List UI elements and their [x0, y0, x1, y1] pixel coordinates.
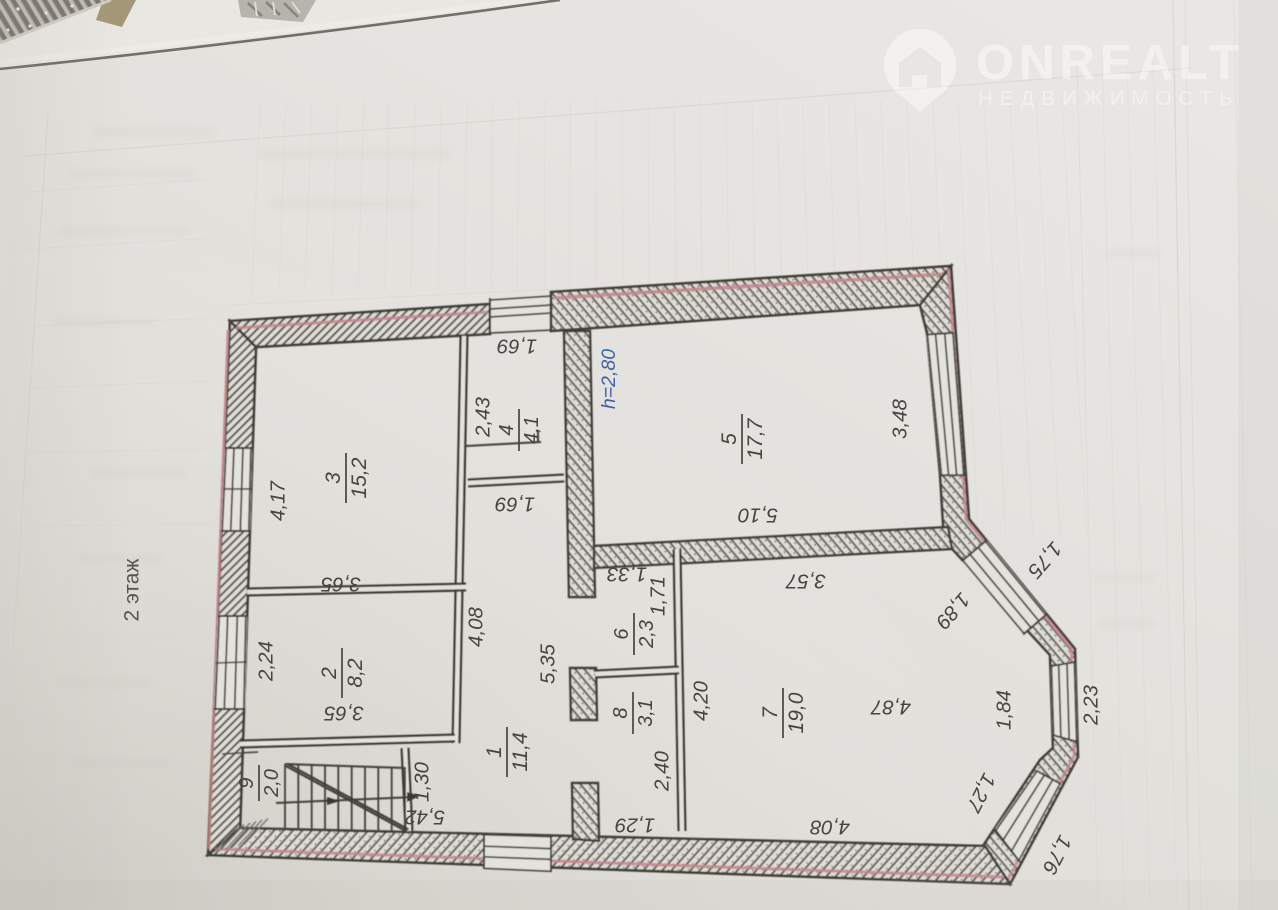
- svg-text:1,71: 1,71: [646, 576, 669, 616]
- svg-text:3,65: 3,65: [320, 573, 360, 596]
- svg-text:4,17: 4,17: [266, 479, 289, 520]
- svg-text:2,24: 2,24: [254, 641, 277, 682]
- svg-text:1,84: 1,84: [992, 690, 1015, 730]
- svg-text:1,29: 1,29: [615, 814, 655, 837]
- svg-text:11,4: 11,4: [509, 732, 532, 771]
- svg-text:h=2,80: h=2,80: [598, 349, 620, 409]
- svg-text:2,40: 2,40: [650, 750, 673, 791]
- svg-text:5,35: 5,35: [536, 643, 559, 683]
- svg-text:2,23: 2,23: [1079, 684, 1102, 725]
- svg-text:1: 1: [483, 746, 506, 758]
- svg-text:5,42: 5,42: [404, 806, 444, 829]
- svg-text:17,7: 17,7: [744, 417, 767, 459]
- svg-text:3: 3: [322, 472, 345, 484]
- svg-text:2,3: 2,3: [636, 620, 658, 649]
- svg-text:4,08: 4,08: [809, 816, 849, 839]
- svg-text:НЕДВИЖИМОСТЬ: НЕДВИЖИМОСТЬ: [978, 87, 1240, 110]
- svg-text:4,08: 4,08: [464, 606, 487, 646]
- svg-text:1,30: 1,30: [410, 761, 433, 801]
- svg-text:7: 7: [759, 706, 782, 719]
- svg-text:3,48: 3,48: [888, 398, 911, 438]
- svg-text:2,43: 2,43: [471, 396, 494, 437]
- svg-text:6: 6: [611, 628, 633, 640]
- svg-text:2: 2: [318, 667, 341, 680]
- svg-text:5,10: 5,10: [737, 504, 777, 527]
- svg-text:4,87: 4,87: [869, 696, 910, 719]
- svg-text:4,20: 4,20: [689, 680, 712, 720]
- svg-text:2,0: 2,0: [261, 769, 283, 798]
- svg-text:3,57: 3,57: [784, 570, 825, 593]
- svg-text:19,0: 19,0: [785, 692, 808, 733]
- svg-text:4: 4: [496, 424, 518, 435]
- svg-text:8: 8: [610, 707, 632, 718]
- svg-text:1,69: 1,69: [495, 493, 535, 516]
- svg-text:ONREALT: ONREALT: [976, 36, 1244, 90]
- svg-text:15,2: 15,2: [348, 457, 371, 498]
- svg-text:3,1: 3,1: [635, 699, 657, 727]
- svg-text:3,65: 3,65: [323, 702, 363, 725]
- svg-text:5: 5: [718, 433, 741, 445]
- svg-text:1,69: 1,69: [497, 335, 537, 358]
- svg-text:1,33: 1,33: [606, 563, 646, 586]
- svg-text:9: 9: [236, 777, 258, 788]
- svg-text:8,2: 8,2: [344, 658, 367, 688]
- svg-text:4,1: 4,1: [521, 416, 543, 444]
